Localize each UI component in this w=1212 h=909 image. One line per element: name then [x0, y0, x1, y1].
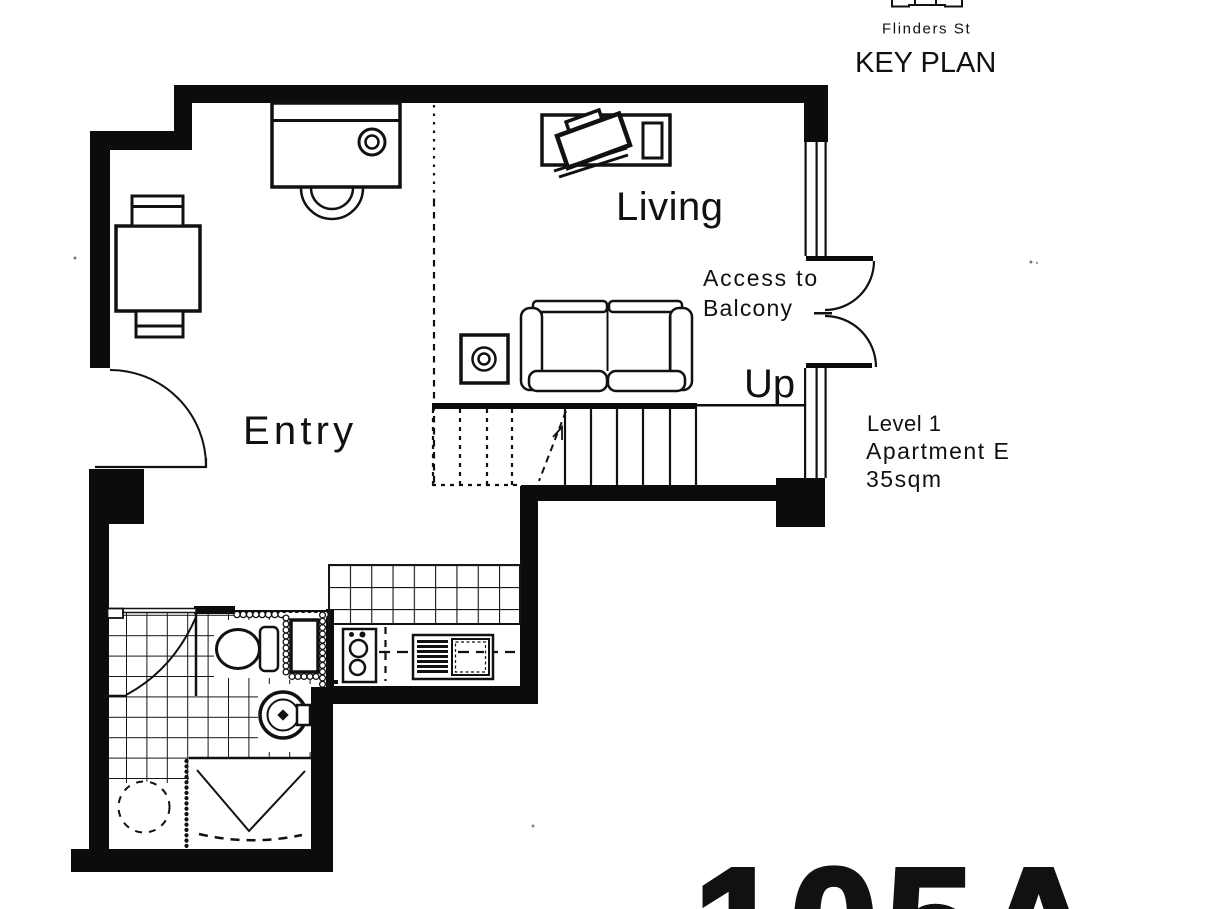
svg-text:KEY PLAN: KEY PLAN — [855, 47, 996, 79]
svg-text:Level 1: Level 1 — [867, 411, 941, 436]
svg-text:35sqm: 35sqm — [866, 466, 943, 492]
svg-text:105A: 105A — [694, 836, 1104, 909]
svg-text:Living: Living — [616, 185, 724, 229]
svg-text:Up: Up — [744, 362, 795, 406]
svg-text:Access to: Access to — [703, 265, 819, 291]
svg-text:Flinders St: Flinders St — [882, 21, 971, 38]
svg-text:Apartment E: Apartment E — [866, 438, 1010, 464]
svg-text:Balcony: Balcony — [703, 295, 793, 321]
svg-text:Entry: Entry — [243, 409, 357, 453]
